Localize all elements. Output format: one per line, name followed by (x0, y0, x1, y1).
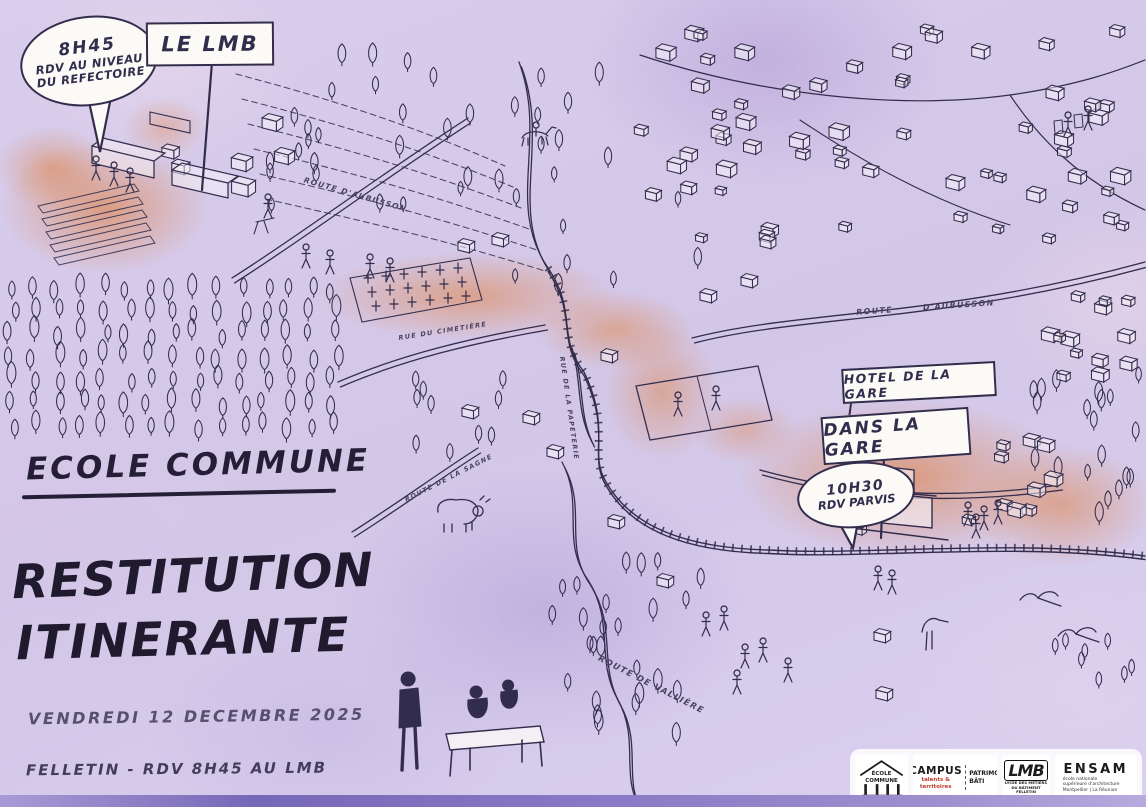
map-illustration (0, 0, 1146, 807)
timber-stacks-icon (38, 184, 155, 265)
dans-la-gare-sign: DANS LA GARE (821, 407, 972, 465)
logo-sublabel: école nationale supérieure d'architectur… (1063, 777, 1129, 794)
logo-campus: CAMPUS talents & territoires PATRIMOINE … (913, 755, 997, 801)
campus-left: CAMPUS talents & territoires (913, 765, 966, 789)
logo-ecole-commune: ÉCOLE COMMUNE (855, 755, 908, 801)
hotel-sign-label: HOTEL DE LA GARE (843, 364, 994, 402)
logo-lmb: LMB LYCÉE DES MÉTIERS DU BÂTIMENT FELLET… (1002, 755, 1049, 801)
logo-label: PATRIMOINE BÂTI (969, 770, 997, 784)
storks-icon (922, 592, 1099, 650)
logo-label: LMB (1004, 760, 1047, 781)
event-location: FELLETIN - RDV 8H45 AU LMB (26, 759, 327, 780)
logo-ensam: ENSAM école nationale supérieure d'archi… (1055, 755, 1137, 801)
logo-label: ENSAM (1063, 762, 1128, 777)
main-title-line2: ITINERANTE (15, 608, 351, 672)
lmb-sign-label: LE LMB (161, 32, 259, 57)
bottom-purple-strip (0, 795, 1146, 807)
picnic-scene-icon (399, 672, 544, 776)
lmb-sign: LE LMB (146, 21, 274, 66)
gare-sign-label: DANS LA GARE (823, 411, 969, 461)
sports-field-icon (636, 366, 772, 440)
logo-label: ÉCOLE COMMUNE (865, 771, 899, 783)
logo-sublabel: talents & territoires (913, 777, 960, 789)
poster: 8H45 RDV AU NIVEAU DU REFECTOIRE LE LMB … (0, 0, 1146, 807)
logo-label: CAMPUS (913, 765, 962, 777)
roads (232, 55, 1146, 807)
